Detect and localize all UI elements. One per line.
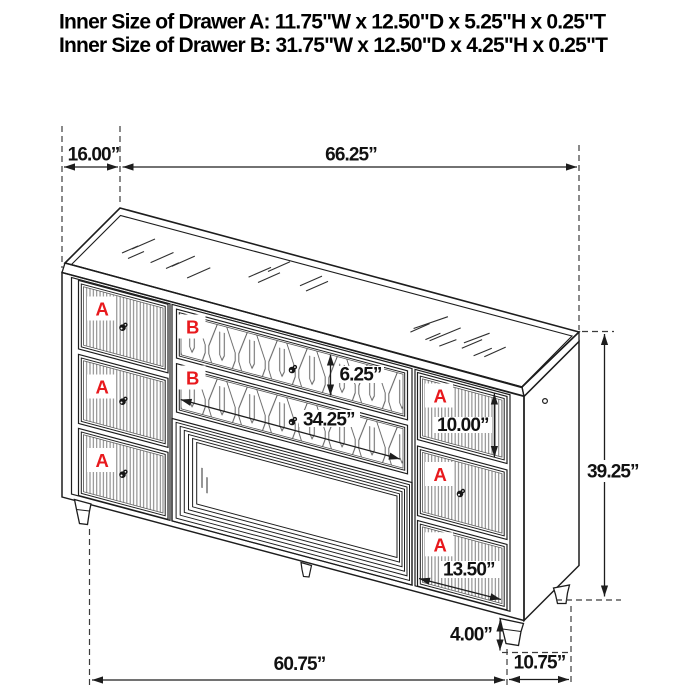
svg-text:A: A (434, 534, 447, 555)
svg-text:Inner Size of Drawer A: 11.75": Inner Size of Drawer A: 11.75"W x 12.50"… (59, 11, 606, 34)
svg-text:B: B (186, 368, 199, 389)
svg-text:B: B (186, 317, 199, 338)
svg-text:6.25”: 6.25” (340, 365, 382, 386)
svg-text:A: A (434, 386, 447, 407)
svg-text:4.00”: 4.00” (450, 625, 492, 646)
svg-text:A: A (434, 464, 447, 485)
svg-text:A: A (96, 450, 109, 471)
svg-text:10.00”: 10.00” (437, 415, 489, 436)
svg-text:13.50”: 13.50” (443, 560, 495, 581)
svg-text:39.25”: 39.25” (587, 462, 639, 483)
svg-text:A: A (96, 377, 109, 398)
svg-text:Inner Size of Drawer B: 31.75": Inner Size of Drawer B: 31.75"W x 12.50"… (59, 34, 608, 57)
svg-text:66.25”: 66.25” (325, 145, 377, 166)
svg-text:10.75”: 10.75” (514, 653, 566, 674)
svg-text:34.25”: 34.25” (303, 410, 355, 431)
svg-text:60.75”: 60.75” (274, 654, 326, 675)
svg-text:16.00”: 16.00” (68, 145, 120, 166)
svg-text:A: A (96, 299, 109, 320)
